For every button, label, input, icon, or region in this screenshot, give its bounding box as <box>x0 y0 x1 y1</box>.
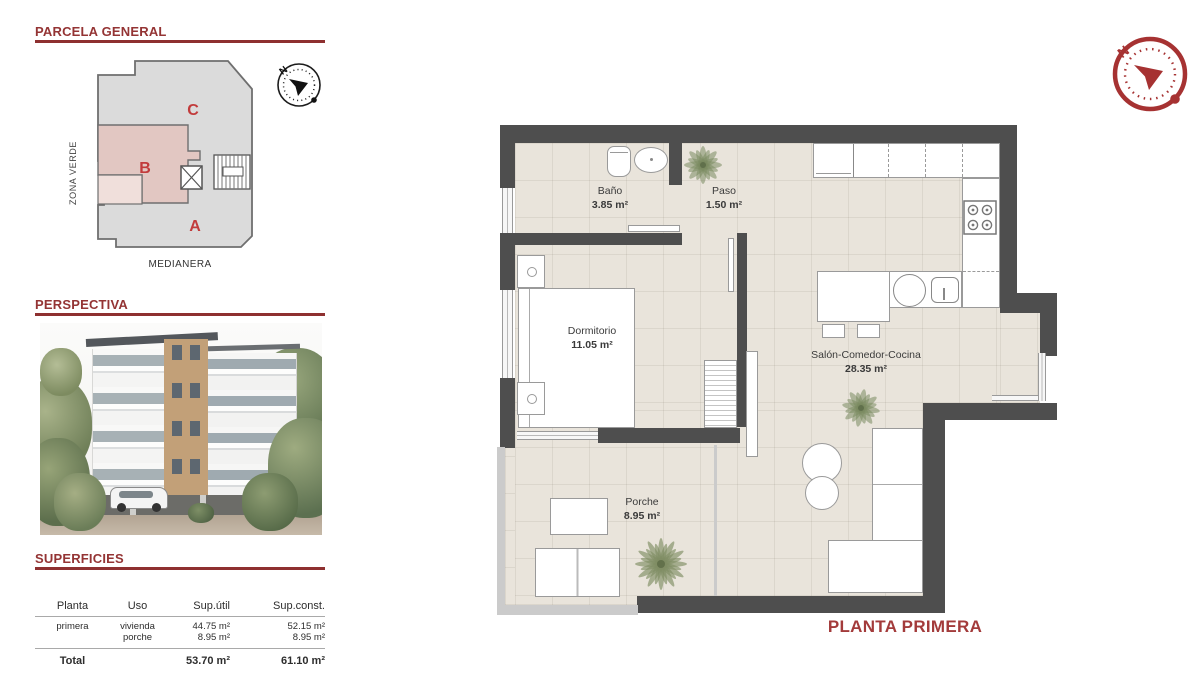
chair <box>822 324 845 338</box>
perspectiva-title: PERSPECTIVA <box>35 297 128 312</box>
wall-left-lower <box>500 378 515 448</box>
floor-area <box>1000 313 1040 403</box>
room-name: Porche <box>624 496 660 510</box>
porch-floor <box>515 596 637 605</box>
col-sup-const: Sup.const. <box>230 600 325 612</box>
plan-sheet: PARCELA GENERAL C B A ZONA VERDE MEDIANE… <box>0 0 1200 698</box>
parcela-general-title: PARCELA GENERAL <box>35 24 167 39</box>
nightstand <box>517 255 545 288</box>
table-total-row: Total 53.70 m² 61.10 m² <box>35 649 325 667</box>
bano-sliding-door <box>628 225 680 232</box>
cell-sup-util: 44.75 m² 8.95 m² <box>165 621 230 643</box>
washer-icon <box>893 274 926 307</box>
car <box>110 487 168 509</box>
col-planta: Planta <box>35 600 110 612</box>
window-salon-lower <box>992 395 1038 401</box>
cell-sup-const: 52.15 m² 8.95 m² <box>230 621 325 643</box>
car-wheel <box>152 503 161 512</box>
plan-title: PLANTA PRIMERA <box>820 617 990 637</box>
room-label-salon: Salón-Comedor-Cocina 28.35 m² <box>811 349 921 376</box>
table-header-row: Planta Uso Sup.útil Sup.const. <box>35 600 325 617</box>
salon-porche-door <box>746 351 758 457</box>
wall-right-lower <box>923 403 945 613</box>
fridge <box>814 144 854 177</box>
site-plan: C B A <box>85 53 275 273</box>
site-compass-icon: N <box>272 58 326 112</box>
sink-icon <box>634 147 668 173</box>
window-strip <box>190 345 200 495</box>
bush <box>188 503 214 523</box>
tree <box>242 473 298 531</box>
room-area: 1.50 m² <box>706 199 742 213</box>
room-name: Dormitorio <box>568 325 616 339</box>
superficies-rule <box>35 567 325 570</box>
round-table-small <box>805 476 839 510</box>
room-area: 8.95 m² <box>624 510 660 524</box>
room-name: Salón-Comedor-Cocina <box>811 349 921 363</box>
wardrobe <box>704 360 737 428</box>
wall-dormitorio-bottom <box>598 428 740 443</box>
porch-salon-divider <box>714 445 717 596</box>
porch-table <box>550 498 608 535</box>
porch-edge-bottom <box>497 605 638 615</box>
building-left-wing <box>92 349 165 501</box>
room-label-paso: Paso 1.50 m² <box>706 185 742 212</box>
wall-far-right <box>1040 293 1057 356</box>
sup-const-porche: 8.95 m² <box>230 632 325 643</box>
sofa-vertical <box>872 428 923 542</box>
car-wheel <box>117 503 126 512</box>
stairs-icon <box>214 155 250 189</box>
toilet-icon <box>607 146 631 177</box>
kitchen-island <box>888 271 962 308</box>
room-label-bano: Baño 3.85 m² <box>592 185 628 212</box>
window-dormitorio-porche <box>517 431 598 440</box>
window-bano <box>502 188 513 235</box>
window-salon-right <box>1038 353 1046 401</box>
room-label-porche: Porche 8.95 m² <box>624 496 660 523</box>
parcela-general-rule <box>35 40 325 43</box>
sofa-horizontal <box>828 540 923 593</box>
floor-plan: Baño 3.85 m² Paso 1.50 m² Dormitorio 11.… <box>497 123 1060 623</box>
room-label-dormitorio: Dormitorio 11.05 m² <box>568 325 616 352</box>
sup-const-vivienda: 52.15 m² <box>230 621 325 632</box>
kitchen-table <box>817 271 890 322</box>
palm-icon <box>631 532 691 596</box>
sup-util-porche: 8.95 m² <box>165 632 230 643</box>
table-row: primera vivienda porche 44.75 m² 8.95 m²… <box>35 617 325 649</box>
tree <box>40 348 82 396</box>
kitchen-counter-right <box>962 178 1000 308</box>
uso-porche: porche <box>110 632 165 643</box>
wall-bano-bottom <box>500 233 682 245</box>
col-uso: Uso <box>110 600 165 612</box>
building-center-column <box>164 339 208 501</box>
total-sup-util: 53.70 m² <box>165 655 230 667</box>
north-compass-icon: N <box>1106 30 1194 118</box>
stove-icon <box>963 200 997 235</box>
plant-icon <box>681 143 725 187</box>
nightstand <box>517 382 545 415</box>
room-area: 3.85 m² <box>592 199 628 213</box>
col-sup-util: Sup.útil <box>165 600 230 612</box>
perspectiva-rule <box>35 313 325 316</box>
zone-c-label: C <box>187 102 199 119</box>
room-name: Baño <box>592 185 628 199</box>
room-area: 28.35 m² <box>811 363 921 377</box>
chair <box>857 324 880 338</box>
wall-left-upper <box>500 125 515 188</box>
wall-right-upper <box>1000 125 1017 313</box>
surfaces-table: Planta Uso Sup.útil Sup.const. primera v… <box>35 600 325 667</box>
zone-b-label: B <box>139 160 151 177</box>
uso-vivienda: vivienda <box>110 621 165 632</box>
tree <box>54 473 106 531</box>
total-sup-const: 61.10 m² <box>230 655 325 667</box>
cell-uso: vivienda porche <box>110 621 165 643</box>
plant-icon <box>839 386 883 430</box>
cell-planta: primera <box>35 621 110 632</box>
porch-floor <box>505 447 515 605</box>
wall-top <box>500 125 1017 143</box>
room-area: 11.05 m² <box>568 339 616 353</box>
kitchen-sink-icon <box>931 277 959 303</box>
wall-bottom <box>637 596 945 613</box>
superficies-title: SUPERFICIES <box>35 551 124 566</box>
kitchen-counter-top <box>813 143 1000 178</box>
room-name: Paso <box>706 185 742 199</box>
zone-a-label: A <box>189 218 201 235</box>
elevator-icon <box>181 166 202 189</box>
zone-b-annex-shape <box>98 175 142 204</box>
window-strip <box>172 345 182 495</box>
dormitorio-door <box>728 238 734 292</box>
sup-util-vivienda: 44.75 m² <box>165 621 230 632</box>
medianera-label: MEDIANERA <box>130 259 230 270</box>
porch-sofa <box>535 548 620 597</box>
porch-edge-left <box>497 447 505 615</box>
window-dormitorio <box>502 290 513 378</box>
total-label: Total <box>35 655 110 667</box>
building-render <box>40 323 322 535</box>
zona-verde-label: ZONA VERDE <box>68 135 78 210</box>
car-windows <box>119 491 153 498</box>
